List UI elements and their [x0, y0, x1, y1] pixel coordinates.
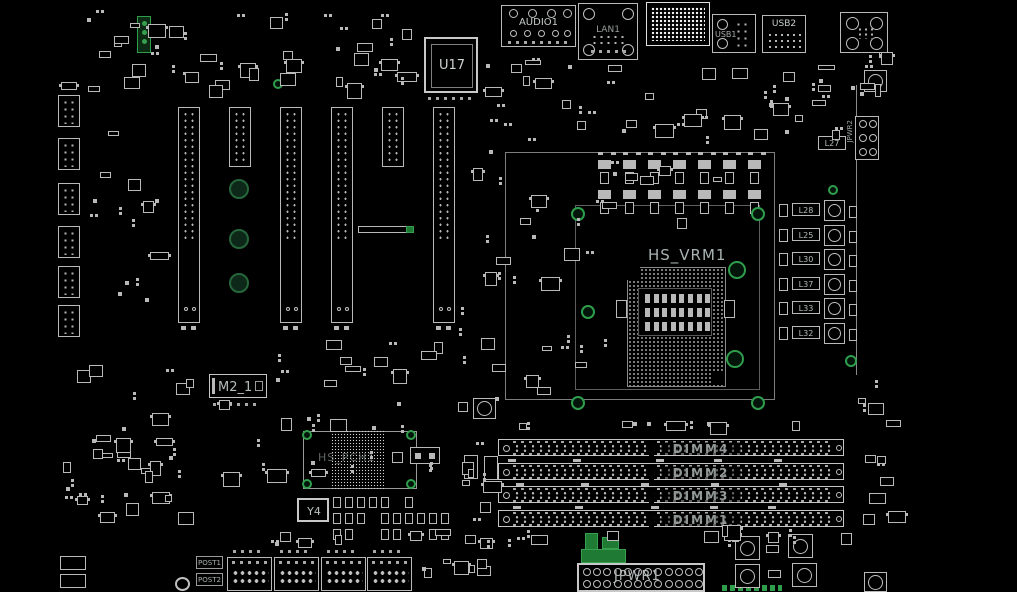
- smd-part: [849, 280, 857, 292]
- pcie-slot-pins: [182, 111, 197, 239]
- smd-chip: [100, 512, 115, 523]
- smd-pad: [706, 136, 709, 139]
- smd-pad: [363, 373, 366, 376]
- smd-pad: [71, 479, 74, 482]
- dimm-label: DIMM3: [661, 489, 741, 502]
- cap-small: [345, 529, 353, 540]
- smd-pad: [166, 369, 169, 372]
- vrm-cap: [824, 298, 845, 319]
- slot-pad: [436, 326, 441, 330]
- mounting-hole: [571, 396, 585, 410]
- smd-chip: [710, 422, 727, 434]
- vrm-part: [700, 202, 709, 214]
- cap-small: [417, 513, 425, 524]
- smd-part: [713, 177, 722, 183]
- smd-part: [511, 64, 522, 73]
- vrm-inductor[interactable]: L25: [792, 228, 820, 241]
- smd-part: [648, 152, 653, 155]
- dimm-slot[interactable]: DIMM1: [498, 510, 844, 527]
- smd-pad: [481, 442, 484, 445]
- smd-pad: [707, 422, 711, 426]
- mounting-hole: [726, 350, 744, 368]
- smd-pad: [238, 65, 240, 68]
- vrm-cap-circle: [828, 204, 841, 217]
- smd-part: [63, 462, 71, 473]
- smd-pad: [741, 527, 743, 530]
- smd-part: [766, 545, 779, 553]
- smd-pad: [286, 370, 289, 373]
- smd-pad: [536, 209, 539, 212]
- slot-pad: [446, 326, 451, 330]
- smd-chip: [267, 469, 287, 483]
- smd-part: [531, 535, 547, 545]
- smd-part: [357, 43, 373, 52]
- smd-part: [132, 64, 146, 77]
- vrm-cap-circle: [828, 327, 841, 340]
- vrm-fet: [779, 302, 788, 315]
- smd-part: [698, 152, 703, 155]
- vrm-cap: [824, 249, 845, 270]
- slot-pad: [344, 326, 349, 330]
- header-pads: [372, 561, 409, 564]
- smd-pad: [567, 340, 570, 343]
- smd-chip: [473, 168, 483, 180]
- pcie-slot[interactable]: [382, 107, 404, 167]
- smd-pad: [835, 127, 838, 130]
- smd-part: [469, 565, 476, 573]
- smd-part: [326, 340, 342, 350]
- slot-end-hole: [286, 307, 290, 311]
- smd-part: [732, 68, 748, 79]
- smd-pad: [119, 212, 122, 215]
- vrm-fet: [779, 278, 788, 291]
- smd-part: [651, 506, 659, 509]
- slot-pad: [293, 326, 298, 330]
- smd-part: [99, 51, 111, 57]
- smd-pad: [278, 359, 281, 362]
- smd-pad: [481, 483, 483, 486]
- pcie-slot[interactable]: [331, 107, 353, 323]
- smd-pad: [401, 430, 404, 433]
- smd-pad: [463, 361, 466, 364]
- slot-end-hole: [184, 307, 188, 311]
- smd-pad: [459, 328, 462, 331]
- smd-pad: [237, 14, 240, 17]
- smd-pad: [275, 542, 279, 546]
- edge-header: [58, 226, 80, 258]
- smd-part: [114, 36, 129, 44]
- smd-pad: [390, 43, 393, 46]
- smd-pad: [372, 426, 376, 430]
- smd-pad: [340, 27, 343, 30]
- edge-header: [58, 183, 80, 215]
- header-pads: [279, 561, 316, 564]
- vrm-inductor-label: L33: [793, 305, 819, 313]
- dimm-slot[interactable]: DIMM3: [498, 486, 844, 503]
- header-pins: [326, 569, 363, 587]
- dimm-key-notch: [649, 441, 654, 456]
- smd-part: [513, 506, 521, 509]
- vrm-fet: [698, 190, 711, 199]
- smd-pad: [362, 85, 364, 88]
- smd-part: [62, 142, 77, 167]
- smd-chip: [531, 195, 547, 208]
- smd-pad: [497, 274, 499, 277]
- smd-pad: [471, 170, 473, 173]
- smd-pad: [727, 424, 729, 427]
- smd-chip: [655, 124, 674, 138]
- smd-part: [435, 529, 451, 537]
- smd-pad: [591, 251, 594, 254]
- smd-part: [795, 115, 803, 122]
- smd-pad: [75, 498, 77, 501]
- header-pins: [232, 569, 269, 587]
- smd-part: [608, 65, 622, 72]
- smd-pad: [132, 219, 135, 222]
- smd-part: [575, 362, 587, 368]
- edge-header: [58, 138, 80, 170]
- boardview-canvas: U17 HS_VRM1 HS_PCH1 Y4 M2_1 AUDIO1: [0, 0, 1017, 592]
- smd-chip: [381, 59, 397, 72]
- smd-pad: [101, 10, 104, 13]
- cap-small: [393, 529, 401, 540]
- smd-pad: [422, 567, 426, 571]
- slot-end-hole: [345, 307, 349, 311]
- smd-pad: [476, 442, 479, 445]
- smd-pad: [702, 116, 704, 119]
- smd-part: [768, 506, 776, 509]
- smd-pad: [863, 404, 866, 407]
- smd-pad: [391, 371, 393, 374]
- inductor: [735, 564, 760, 588]
- smd-part: [714, 459, 722, 462]
- smd-pad: [287, 471, 289, 474]
- smd-part: [185, 72, 198, 83]
- vrm-inductor-label: L32: [793, 330, 819, 338]
- smd-pad: [539, 279, 541, 282]
- vrm-fet: [673, 190, 686, 199]
- smd-pad: [172, 65, 175, 68]
- smd-part: [392, 452, 404, 463]
- smd-pad: [90, 214, 93, 217]
- smd-pad: [593, 111, 596, 114]
- smd-part: [523, 76, 530, 85]
- header-pins: [279, 569, 316, 587]
- smd-pad: [502, 89, 504, 92]
- smd-part: [249, 68, 259, 80]
- smd-pad: [580, 350, 583, 353]
- smd-pad: [278, 354, 281, 357]
- smd-part: [280, 73, 297, 86]
- pcie-slot-pins: [437, 111, 452, 239]
- smd-pad: [893, 54, 895, 57]
- smd-part: [496, 257, 510, 265]
- smd-pad: [604, 339, 607, 342]
- vrm-fet: [723, 160, 736, 169]
- smd-chip: [666, 421, 686, 431]
- dimm-slot[interactable]: DIMM4: [498, 439, 844, 456]
- smd-chip: [888, 511, 905, 524]
- smd-pad: [487, 545, 490, 548]
- header-pads: [326, 561, 363, 564]
- pcie-slot[interactable]: [433, 107, 455, 323]
- smd-pad: [148, 254, 150, 257]
- smd-part: [480, 502, 491, 513]
- smd-chip: [535, 78, 551, 89]
- smd-part: [96, 435, 111, 443]
- smd-pad: [284, 61, 286, 64]
- smd-pad: [115, 514, 117, 517]
- smd-pad: [257, 444, 260, 447]
- vrm-inductor[interactable]: L32: [792, 326, 820, 339]
- smd-part: [283, 51, 293, 60]
- smd-pad: [596, 200, 599, 203]
- smd-chip: [61, 82, 77, 90]
- smd-pad: [408, 533, 410, 536]
- mounting-hole: [406, 479, 416, 489]
- smd-pad: [607, 81, 610, 84]
- smd-part: [768, 570, 781, 578]
- smd-part: [740, 569, 755, 584]
- smd-pad: [155, 45, 159, 49]
- vrm-cap-circle: [828, 253, 841, 266]
- header-pads: [232, 561, 269, 564]
- smd-pad: [517, 537, 520, 540]
- smd-pad: [478, 540, 480, 543]
- smd-part: [736, 152, 741, 155]
- smd-pad: [257, 439, 260, 442]
- smd-pad: [285, 13, 288, 16]
- smd-pad: [452, 563, 454, 566]
- smd-pad: [114, 440, 116, 443]
- smd-part: [62, 187, 77, 212]
- cap-small: [381, 513, 389, 524]
- smd-pad: [312, 424, 315, 427]
- mounting-hole: [828, 185, 838, 195]
- smd-pad: [789, 105, 791, 108]
- vrm-part: [725, 202, 734, 214]
- smd-pad: [819, 79, 823, 83]
- smd-pad: [96, 10, 99, 13]
- smd-part: [537, 387, 551, 395]
- vrm-inductor[interactable]: L33: [792, 301, 820, 314]
- bottom-header[interactable]: [227, 557, 272, 591]
- smd-part: [516, 483, 524, 486]
- smd-pad: [136, 283, 139, 286]
- smd-pad: [417, 74, 419, 77]
- cap-small: [345, 513, 353, 524]
- dimm-label: DIMM2: [661, 466, 741, 479]
- smd-pad: [125, 281, 129, 285]
- smd-pad: [561, 346, 564, 349]
- smd-pad: [509, 123, 512, 126]
- smd-pad: [537, 58, 540, 61]
- mounting-hole: [845, 355, 857, 367]
- smd-pad: [71, 484, 74, 487]
- smd-pad: [119, 207, 122, 210]
- smd-pad: [487, 540, 490, 543]
- smd-pad: [567, 335, 570, 338]
- smd-pad: [178, 475, 181, 478]
- vrm-inductor[interactable]: L28: [792, 203, 820, 216]
- smd-chip: [773, 103, 789, 116]
- smd-part: [841, 533, 851, 544]
- smd-chip: [148, 24, 167, 38]
- smd-pad: [604, 344, 607, 347]
- smd-part: [128, 179, 141, 191]
- smd-pad: [230, 402, 232, 405]
- smd-part: [62, 99, 77, 124]
- slot-pad: [181, 326, 186, 330]
- smd-part: [686, 152, 691, 155]
- bottom-header[interactable]: [367, 557, 412, 591]
- smd-part: [704, 531, 720, 543]
- smd-part: [481, 338, 494, 350]
- pcie-slot[interactable]: [280, 107, 302, 323]
- vrm-fet: [623, 160, 636, 169]
- smd-chip: [150, 252, 169, 260]
- smd-pad: [601, 200, 604, 203]
- smd-part: [575, 506, 583, 509]
- smd-part: [722, 525, 729, 536]
- smd-pad: [579, 106, 582, 109]
- smd-pad: [690, 421, 693, 424]
- smd-pad: [173, 448, 176, 451]
- smd-pad: [566, 346, 569, 349]
- smd-chip: [485, 87, 502, 97]
- smd-pad: [498, 277, 501, 280]
- smd-pad: [690, 426, 693, 429]
- inductor: [792, 563, 817, 587]
- smd-pad: [407, 371, 409, 374]
- smd-pad: [430, 462, 433, 465]
- smd-part: [178, 512, 194, 524]
- smd-part: [89, 365, 103, 377]
- smd-pad: [773, 90, 776, 93]
- smd-pad: [499, 182, 502, 185]
- smd-pad: [336, 47, 340, 51]
- smd-pad: [171, 369, 174, 372]
- smd-part: [812, 100, 826, 106]
- pcie-slot[interactable]: [229, 107, 251, 167]
- pcie-slot-pins: [233, 111, 248, 161]
- smd-pad: [508, 539, 511, 542]
- pcie-slot[interactable]: [178, 107, 200, 323]
- bottom-header[interactable]: [274, 557, 319, 591]
- vrm-inductor-label: L25: [793, 232, 819, 240]
- vrm-fet: [598, 190, 611, 199]
- smd-pad: [502, 483, 504, 486]
- smd-part: [849, 206, 857, 218]
- smd-pad: [217, 402, 219, 405]
- smd-pad: [539, 377, 541, 380]
- slot-pad: [191, 326, 196, 330]
- smd-part: [849, 304, 857, 316]
- smd-pad: [145, 298, 149, 302]
- smd-part: [145, 471, 153, 483]
- vrm-cap: [824, 274, 845, 295]
- smd-pad: [122, 459, 125, 462]
- edge-header: [58, 266, 80, 298]
- smd-pad: [317, 414, 320, 417]
- smd-pad: [611, 161, 614, 164]
- bottom-header[interactable]: [321, 557, 366, 591]
- smd-part: [602, 202, 617, 209]
- smd-chip: [410, 531, 423, 540]
- cap-small: [357, 513, 365, 524]
- smd-chip: [397, 72, 417, 82]
- dimm-slot[interactable]: DIMM2: [498, 463, 844, 480]
- dimm-key-notch: [649, 488, 654, 503]
- smd-pad: [612, 81, 615, 84]
- smd-part: [754, 129, 768, 140]
- smd-pad: [379, 73, 382, 76]
- smd-pad: [504, 123, 507, 126]
- smd-pad: [766, 534, 768, 537]
- smd-pad: [381, 14, 384, 17]
- smd-pad: [875, 380, 878, 383]
- cap-small: [441, 513, 449, 524]
- smd-part: [645, 93, 655, 100]
- smd-part: [169, 26, 184, 38]
- smd-pad: [262, 463, 265, 466]
- smd-part: [880, 477, 893, 486]
- smd-part: [869, 493, 885, 504]
- smd-pad: [524, 377, 526, 380]
- cap-small: [405, 513, 413, 524]
- smd-part: [62, 230, 77, 255]
- smd-part: [165, 495, 171, 502]
- smd-part: [622, 421, 633, 428]
- mounting-hole: [406, 430, 416, 440]
- smd-pad: [577, 223, 580, 226]
- smd-pad: [281, 370, 284, 373]
- smd-pad: [312, 429, 315, 432]
- vrm-cap-circle: [828, 229, 841, 242]
- smd-pad: [682, 116, 684, 119]
- smd-pad: [242, 14, 245, 17]
- smd-pad: [132, 224, 135, 227]
- smd-part: [126, 503, 139, 516]
- smd-pad: [151, 52, 154, 55]
- smd-pad: [401, 82, 404, 85]
- smd-part: [625, 173, 638, 181]
- smd-part: [611, 152, 616, 155]
- smd-pad: [154, 440, 156, 443]
- cap-small: [369, 497, 377, 508]
- edge-header: [58, 95, 80, 127]
- smd-chip: [526, 375, 539, 388]
- vrm-fet: [779, 229, 788, 242]
- vrm-cap-circle: [828, 278, 841, 291]
- header-pads: [280, 550, 312, 553]
- smd-pad: [513, 276, 516, 279]
- header-pads: [373, 550, 405, 553]
- smd-pad: [161, 463, 163, 466]
- vrm-inductor[interactable]: L30: [792, 252, 820, 265]
- smd-pad: [148, 463, 150, 466]
- vrm-fet: [673, 160, 686, 169]
- smd-part: [865, 455, 876, 463]
- vrm-inductor[interactable]: L37: [792, 277, 820, 290]
- smd-pad: [886, 513, 888, 516]
- smd-pad: [728, 544, 731, 547]
- smd-pad: [117, 459, 120, 462]
- smd-chip: [483, 481, 503, 493]
- smd-part: [209, 85, 223, 98]
- smd-pad: [870, 65, 873, 68]
- smd-pad: [793, 541, 796, 544]
